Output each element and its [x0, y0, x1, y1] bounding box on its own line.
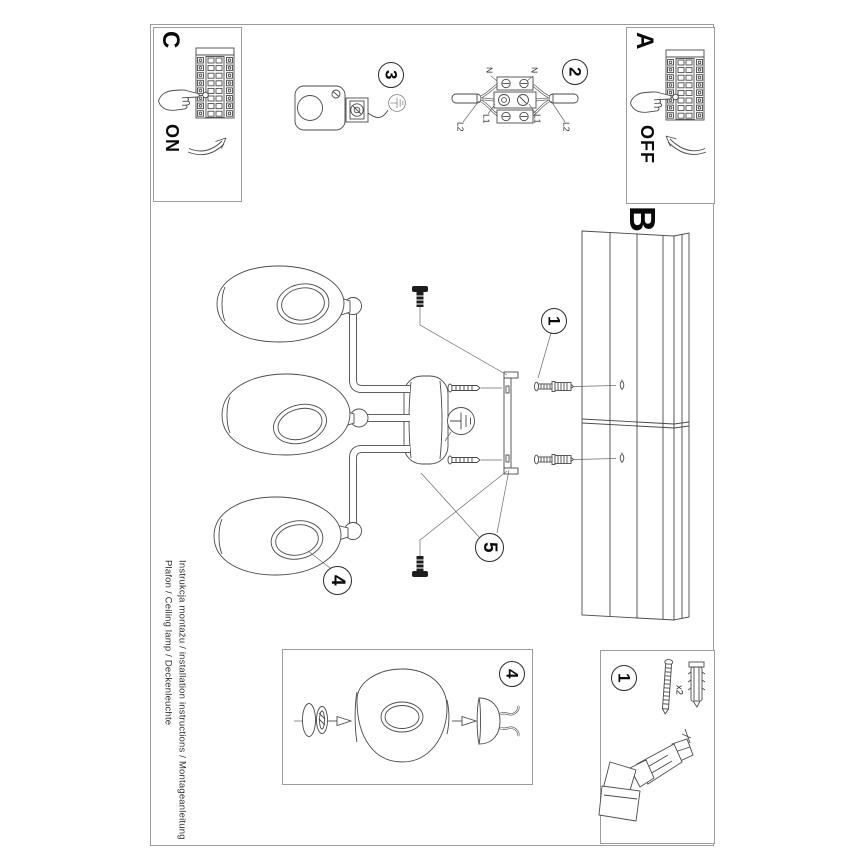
wire-label-l2-right: L2 — [562, 122, 571, 131]
lamp-shade-bottom — [214, 497, 348, 575]
earth-symbol — [445, 408, 475, 442]
power-drill-icon — [599, 729, 693, 821]
canopy-screw-top — [448, 384, 502, 392]
canopy-screw-bottom — [448, 456, 502, 464]
product-title: Plafon / Ceiling lamp / Deckenleuchte — [163, 560, 173, 725]
line-art-layer — [0, 0, 868, 868]
callout-circle-3: 3 — [378, 62, 404, 88]
black-screw-top — [412, 286, 507, 375]
step4-illustration — [294, 669, 518, 762]
callout-circle-5: 5 — [475, 533, 504, 562]
wire-label-l1-left: L1 — [482, 114, 491, 123]
callout-circle-4: 4 — [323, 566, 352, 595]
lamp-shade-top — [217, 266, 350, 342]
box1-callout-circle: 1 — [611, 665, 637, 691]
box4-callout-circle: 4 — [499, 661, 525, 687]
wire-label-n-right: N — [530, 67, 539, 73]
quantity-label: x2 — [674, 685, 684, 695]
mounting-bracket — [504, 372, 518, 474]
lamp-shade-middle — [222, 374, 354, 455]
off-label: OFF — [638, 125, 656, 164]
on-label: ON — [163, 124, 181, 153]
wire-label-n-left: N — [485, 67, 494, 73]
wire-label-l2-left: L2 — [456, 122, 465, 131]
step3-illustration — [295, 86, 405, 130]
canopy — [404, 376, 448, 464]
section-label-b: B — [624, 206, 660, 232]
wall-plug-icon — [688, 662, 705, 707]
callout-circle-2: 2 — [562, 59, 588, 85]
ceiling-panel — [582, 231, 689, 620]
section-label-c: C — [158, 31, 182, 48]
wire-label-l1-right: L1 — [533, 114, 542, 123]
section-label-a: A — [632, 32, 656, 49]
step2-illustration — [452, 76, 578, 123]
callout-circle-1: 1 — [541, 308, 567, 334]
manual-title: Instrukcja montażu / installation instru… — [177, 560, 187, 840]
manual-page: C ON A OFF B 3 2 1 5 4 4 1 N N L1 L1 L2 … — [0, 0, 868, 868]
